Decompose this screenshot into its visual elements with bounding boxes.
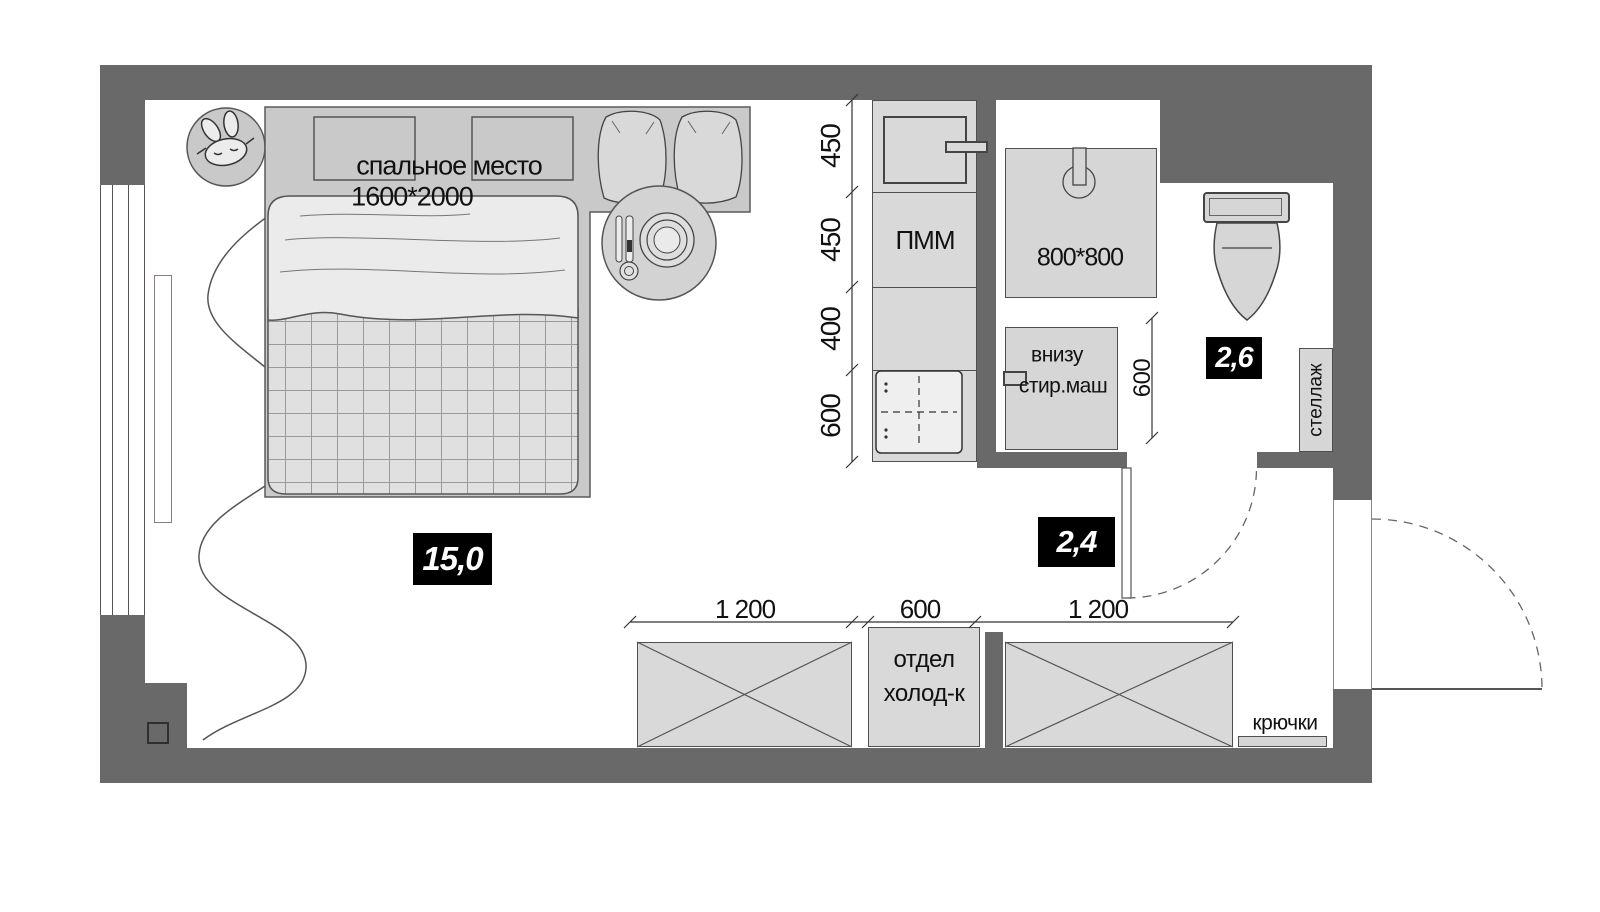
sleeping-place-size: 1600*2000 [351, 184, 473, 211]
fridge-label-line2: холод-к [884, 682, 965, 706]
wall-stub-hall [985, 632, 1003, 748]
area-value: 2,6 [1215, 342, 1252, 375]
kitchen-dim-400: 400 [817, 307, 845, 351]
wall-right-upper [1333, 65, 1372, 500]
wall-top [100, 65, 1372, 100]
storage-dim-left: 1 200 [715, 596, 775, 622]
washer-depth-dim: 600 [1131, 359, 1155, 398]
wall-bath-bottom-right [1257, 452, 1333, 468]
counter-divider [872, 287, 977, 288]
shower-size-label: 800*800 [1037, 246, 1123, 271]
area-badge-main-room: 15,0 [413, 533, 492, 585]
sleeping-place-label: спальное место [356, 153, 542, 180]
wall-right-lower [1333, 689, 1372, 783]
toilet-icon [1214, 223, 1280, 320]
kitchen-dim-450a: 450 [817, 124, 845, 168]
counter-divider [872, 370, 977, 371]
toilet-cistern-lid [1209, 198, 1282, 216]
curtain-line [199, 172, 333, 740]
duct-shaft [1160, 100, 1333, 183]
wall-bottom [100, 748, 1372, 783]
wall-left-upper [100, 65, 145, 185]
hooks-strip [1238, 736, 1327, 747]
bath-door-leaf [1122, 468, 1131, 598]
wardrobe-left [637, 642, 852, 747]
window [100, 185, 145, 615]
dimension-line-kitchen [846, 94, 858, 468]
sleep-mask-icon [187, 108, 265, 186]
area-badge-hallway: 2,4 [1038, 517, 1115, 567]
area-value: 15,0 [422, 540, 482, 578]
area-badge-bathroom: 2,6 [1206, 337, 1262, 379]
bed-duvet [268, 196, 578, 320]
plate-icon [640, 213, 694, 267]
column-detail-square [147, 722, 169, 744]
window-glazing-line [112, 185, 113, 615]
door-swing-arc [1372, 519, 1542, 689]
entrance-door-opening [1333, 500, 1372, 689]
pillow [674, 111, 742, 203]
washer-label-line1: внизу [1031, 345, 1083, 366]
wall-kitchen-bath-partition [977, 100, 996, 468]
radiator [154, 275, 172, 523]
area-value: 2,4 [1056, 524, 1096, 560]
wall-bath-bottom-left [977, 452, 1127, 468]
window-glazing-line [128, 185, 129, 615]
cutlery-icon [616, 216, 622, 262]
faucet-icon [945, 141, 988, 153]
washer-label-line2: стир.маш [1019, 376, 1107, 397]
bed-quilt [268, 305, 578, 494]
door-swing-arc [1127, 468, 1257, 598]
pillow [598, 111, 666, 203]
floor-plan: спальное место 1600*2000 ПММ 450 450 400… [0, 0, 1600, 912]
bedside-table [602, 186, 716, 300]
kitchen-dim-450b: 450 [817, 218, 845, 262]
duvet-crease [280, 214, 565, 274]
hooks-label: крючки [1252, 713, 1317, 734]
fridge-label-line1: отдел [893, 648, 954, 672]
wardrobe-right [1005, 642, 1233, 747]
kitchen-dim-600: 600 [817, 394, 845, 438]
dishwasher-label: ПММ [895, 227, 954, 253]
storage-dim-mid: 600 [900, 596, 940, 622]
storage-dim-right: 1 200 [1068, 596, 1128, 622]
counter-divider [872, 192, 977, 193]
shelf-label: стеллаж [1307, 363, 1326, 436]
cup-icon [620, 262, 638, 280]
shower-tray [1005, 148, 1157, 298]
